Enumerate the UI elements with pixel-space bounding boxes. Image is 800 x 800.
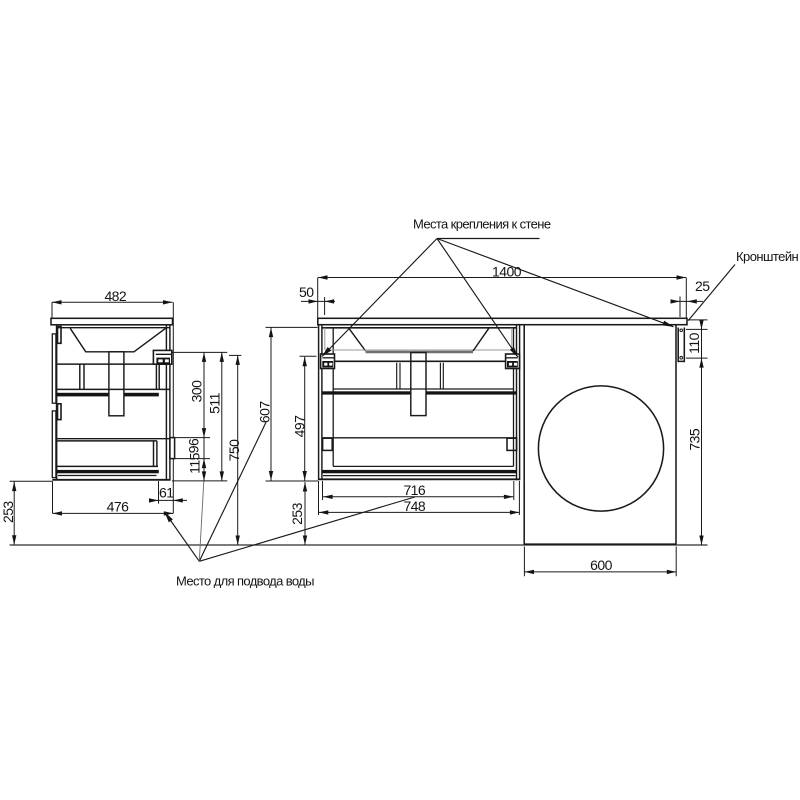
svg-text:716: 716 bbox=[403, 482, 425, 498]
svg-text:607: 607 bbox=[257, 401, 273, 423]
svg-text:497: 497 bbox=[292, 415, 308, 437]
svg-text:1400: 1400 bbox=[492, 264, 522, 280]
svg-text:25: 25 bbox=[695, 278, 710, 294]
svg-text:253: 253 bbox=[289, 502, 305, 524]
svg-text:511: 511 bbox=[207, 392, 223, 413]
svg-text:735: 735 bbox=[687, 428, 703, 450]
svg-text:600: 600 bbox=[590, 557, 612, 573]
svg-text:750: 750 bbox=[226, 439, 242, 461]
svg-text:748: 748 bbox=[403, 498, 425, 514]
svg-text:50: 50 bbox=[299, 284, 314, 300]
svg-text:115: 115 bbox=[187, 452, 203, 473]
svg-text:Места крепления к стене: Места крепления к стене bbox=[413, 217, 551, 232]
svg-text:482: 482 bbox=[104, 288, 126, 304]
svg-text:Кронштейн: Кронштейн bbox=[736, 249, 799, 264]
svg-text:Место для подвода воды: Место для подвода воды bbox=[176, 574, 314, 589]
svg-text:253: 253 bbox=[0, 501, 16, 523]
svg-text:110: 110 bbox=[686, 332, 702, 353]
svg-text:96: 96 bbox=[186, 438, 202, 453]
svg-text:476: 476 bbox=[107, 499, 129, 515]
svg-text:300: 300 bbox=[188, 380, 204, 402]
svg-text:61: 61 bbox=[159, 485, 174, 501]
